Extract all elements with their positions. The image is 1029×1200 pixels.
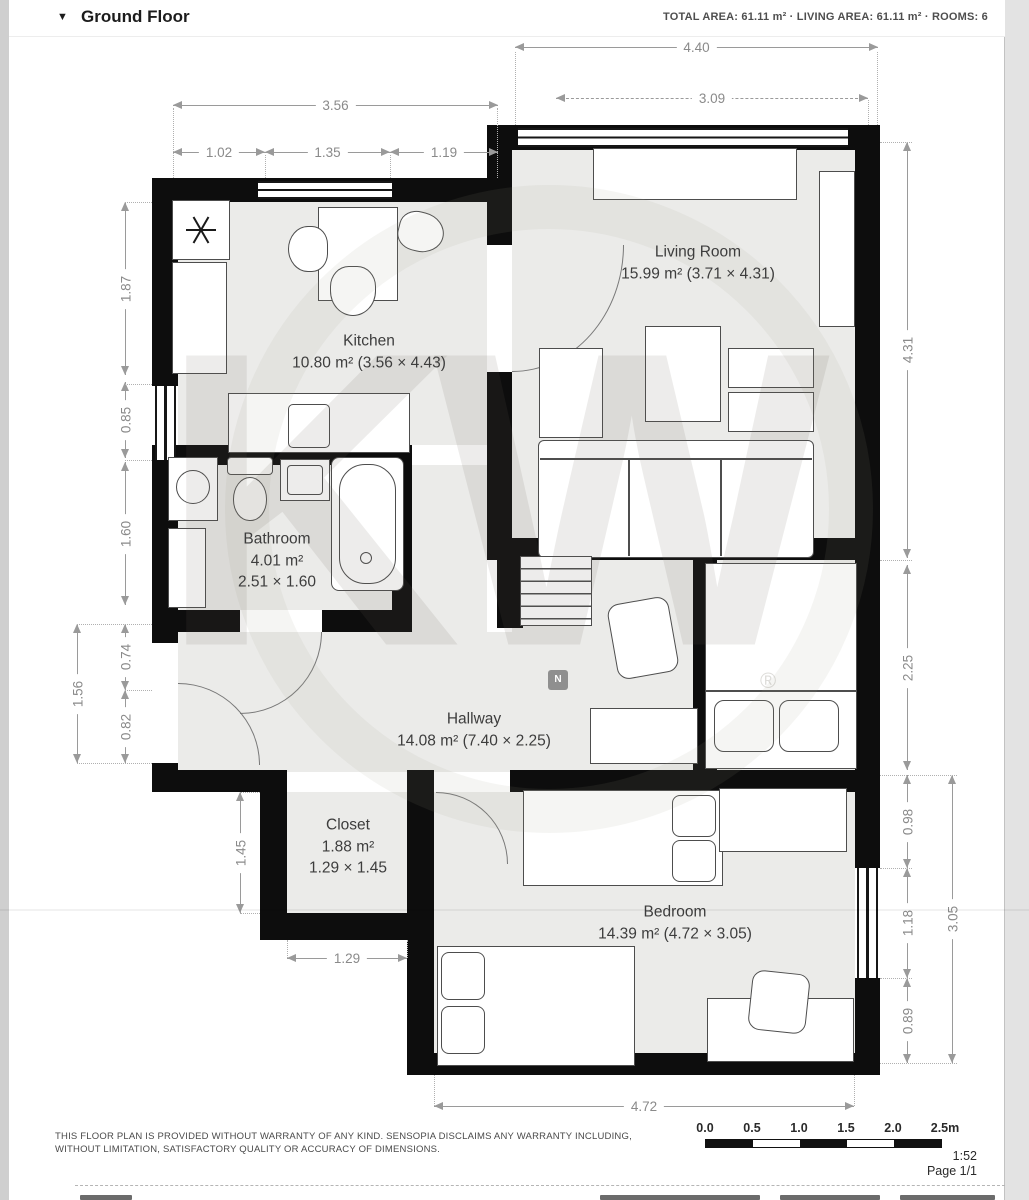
hallway-label: Hallway 14.08 m² (7.40 × 2.25) [397,708,551,751]
dim-label: 1.19 [424,145,464,160]
kitchen-window [258,181,392,199]
room-dims: 2.51 × 1.60 [238,574,316,591]
room-area: 14.39 m² (4.72 × 3.05) [598,925,752,942]
scale-tick-label: 2.5m [931,1121,960,1135]
living-window [518,128,848,147]
dim-top-outer: 4.40 [515,47,878,48]
dim-label: 4.31 [901,330,916,370]
dim-l2: 0.85 [125,382,126,458]
wall-segment [487,150,512,245]
floorplan-canvas: KW ® N Kitchen 10.80 m² (3.56 × 4.43) Li… [0,0,1029,1200]
room-area: 4.01 m² [238,550,316,572]
console-table [590,708,698,764]
scale-tick-label: 0.0 [696,1121,713,1135]
side-table [539,348,603,438]
dim-label: 3.09 [692,91,732,106]
dim-bedroom-w: 4.72 [434,1106,854,1107]
ext-line [880,978,912,979]
sofa-divider [720,460,722,556]
dim-label: 3.05 [946,899,961,939]
ext-line [880,142,912,143]
ext-line [880,1063,957,1064]
hallway-corridor-fill [412,465,487,632]
room-area: 14.08 m² (7.40 × 2.25) [397,732,551,749]
dim-label: 0.82 [119,706,134,746]
ext-line [390,155,391,178]
disclaimer-line2: WITHOUT LIMITATION, SATISFACTORY QUALITY… [55,1144,440,1155]
ext-line [240,913,260,914]
bathroom-label: Bathroom 4.01 m² 2.51 × 1.60 [238,528,316,593]
ext-line [497,108,498,178]
dim-l-outer: 1.56 [77,624,78,763]
ext-line [515,52,516,125]
wall-segment [487,372,512,560]
dim-label: 1.56 [71,673,86,713]
sofa-back-line [540,458,812,460]
ext-line [77,763,152,764]
room-name: Kitchen [292,330,446,352]
dim-label: 0.85 [119,400,134,440]
dim-label: 2.25 [901,647,916,687]
ext-line [434,1075,435,1106]
bath-vanity [168,528,206,608]
ext-line [880,775,957,776]
wall-segment [855,125,880,792]
ext-line [125,460,152,461]
desk-chair [747,969,811,1035]
room-area: 1.88 m² [309,836,387,858]
ext-line [77,624,152,625]
room-name: Closet [309,814,387,836]
wall-segment [152,610,240,632]
dim-label: 1.35 [307,145,347,160]
ext-line [173,108,174,178]
nook-pillow [714,700,774,752]
dim-k2: 1.35 [265,152,390,153]
dim-closet-w: 1.29 [287,958,407,959]
dim-r3: 0.98 [907,775,908,868]
dim-label: 1.45 [234,832,249,872]
room-area: 15.99 m² (3.71 × 4.31) [621,265,775,282]
ext-line [407,940,408,958]
toilet-tank [227,457,273,475]
room-area: 10.80 m² (3.56 × 4.43) [292,354,446,371]
floorplan-page: ▼ Ground Floor TOTAL AREA: 61.11 m² · LI… [0,0,1029,1200]
desk-top [719,788,847,852]
wall-segment [855,978,880,1075]
clipped-text-fragment [900,1195,995,1200]
clipped-text-fragment [80,1195,132,1200]
dim-label: 1.02 [199,145,239,160]
room-name: Bathroom [238,528,316,550]
bedroom-window [857,868,878,978]
dim-r1: 4.31 [907,142,908,558]
kitchen-sink [288,404,330,448]
clipped-text-fragment [600,1195,760,1200]
side-shelf [728,348,814,388]
nook-pillow [779,700,839,752]
kitchen-label: Kitchen 10.80 m² (3.56 × 4.43) [292,330,446,373]
scale-tick-label: 1.5 [837,1121,854,1135]
dim-label: 4.40 [676,40,716,55]
nook-bed-line [706,690,856,692]
dim-label: 0.74 [119,637,134,677]
dim-kitchen-width: 3.56 [173,105,498,106]
side-shelf [728,392,814,432]
dim-k3: 1.19 [390,152,498,153]
snowflake-icon [186,215,216,245]
ext-line [125,202,152,203]
kitchen-cabinet [172,262,227,374]
dim-label: 3.56 [315,98,355,113]
room-name: Bedroom [598,901,752,923]
dim-label: 1.29 [327,951,367,966]
dim-l4: 0.74 [125,624,126,690]
living-label: Living Room 15.99 m² (3.71 × 4.31) [621,241,775,284]
dashed-separator [75,1185,1005,1186]
north-compass-icon: N [548,670,568,690]
wall-segment [407,770,434,1075]
wall-segment [322,610,412,632]
ext-line [880,868,912,869]
dim-l3: 1.60 [125,462,126,605]
toilet-bowl [233,477,267,521]
scale-ratio: 1:52 [953,1149,977,1163]
scale-tick-label: 0.5 [743,1121,760,1135]
bathtub-drain [360,552,372,564]
dim-k1: 1.02 [173,152,265,153]
clipped-text-fragment [780,1195,880,1200]
ext-line [240,792,260,793]
ext-line [880,560,912,561]
bath-sink-basin [287,465,323,495]
dim-l5: 0.82 [125,690,126,763]
room-name: Hallway [397,708,551,730]
scale-tick-label: 2.0 [884,1121,901,1135]
ext-line [265,155,266,178]
ext-line [854,1075,855,1106]
ext-line [125,384,152,385]
dim-closet-h: 1.45 [240,792,241,913]
dim-label: 1.60 [119,513,134,553]
dim-r2: 2.25 [907,565,908,770]
dim-r4: 1.18 [907,868,908,978]
stairs [520,556,592,626]
washing-machine-door [176,470,210,504]
closet-label: Closet 1.88 m² 1.29 × 1.45 [309,814,387,879]
bed-bottom-pillow [441,952,485,1000]
bathtub-basin [339,464,396,584]
dim-label: 0.98 [901,801,916,841]
bed-top-pillow [672,840,716,882]
disclaimer-line1: THIS FLOOR PLAN IS PROVIDED WITHOUT WARR… [55,1131,632,1142]
dim-label: 1.87 [119,268,134,308]
ext-line [877,52,878,125]
kitchen-west-window [155,386,176,460]
bed-top-pillow [672,795,716,837]
room-dims: 1.29 × 1.45 [309,860,387,877]
dim-r5: 0.89 [907,978,908,1063]
page-indicator: Page 1/1 [927,1164,977,1178]
dim-label: 0.89 [901,1000,916,1040]
scale-tick-label: 1.0 [790,1121,807,1135]
dim-top-inner: 3.09 [556,98,868,99]
scale-bar-segments [705,1139,942,1148]
ext-line [287,940,288,958]
room-name: Living Room [621,241,775,263]
living-cabinet [819,171,855,327]
sofa-divider [628,460,630,556]
dim-l1: 1.87 [125,202,126,375]
sideboard [593,148,797,200]
ext-line [868,100,869,125]
dining-chair [288,226,328,272]
ext-line [125,690,152,691]
dim-label: 4.72 [624,1099,664,1114]
armchair [606,595,680,681]
wall-segment [855,792,880,868]
coffee-table [645,326,721,422]
page-seam-line [0,909,1029,911]
dining-chair [330,266,376,316]
bed-bottom-pillow [441,1006,485,1054]
dim-r-outer: 3.05 [952,775,953,1063]
bedroom-label: Bedroom 14.39 m² (4.72 × 3.05) [598,901,752,944]
